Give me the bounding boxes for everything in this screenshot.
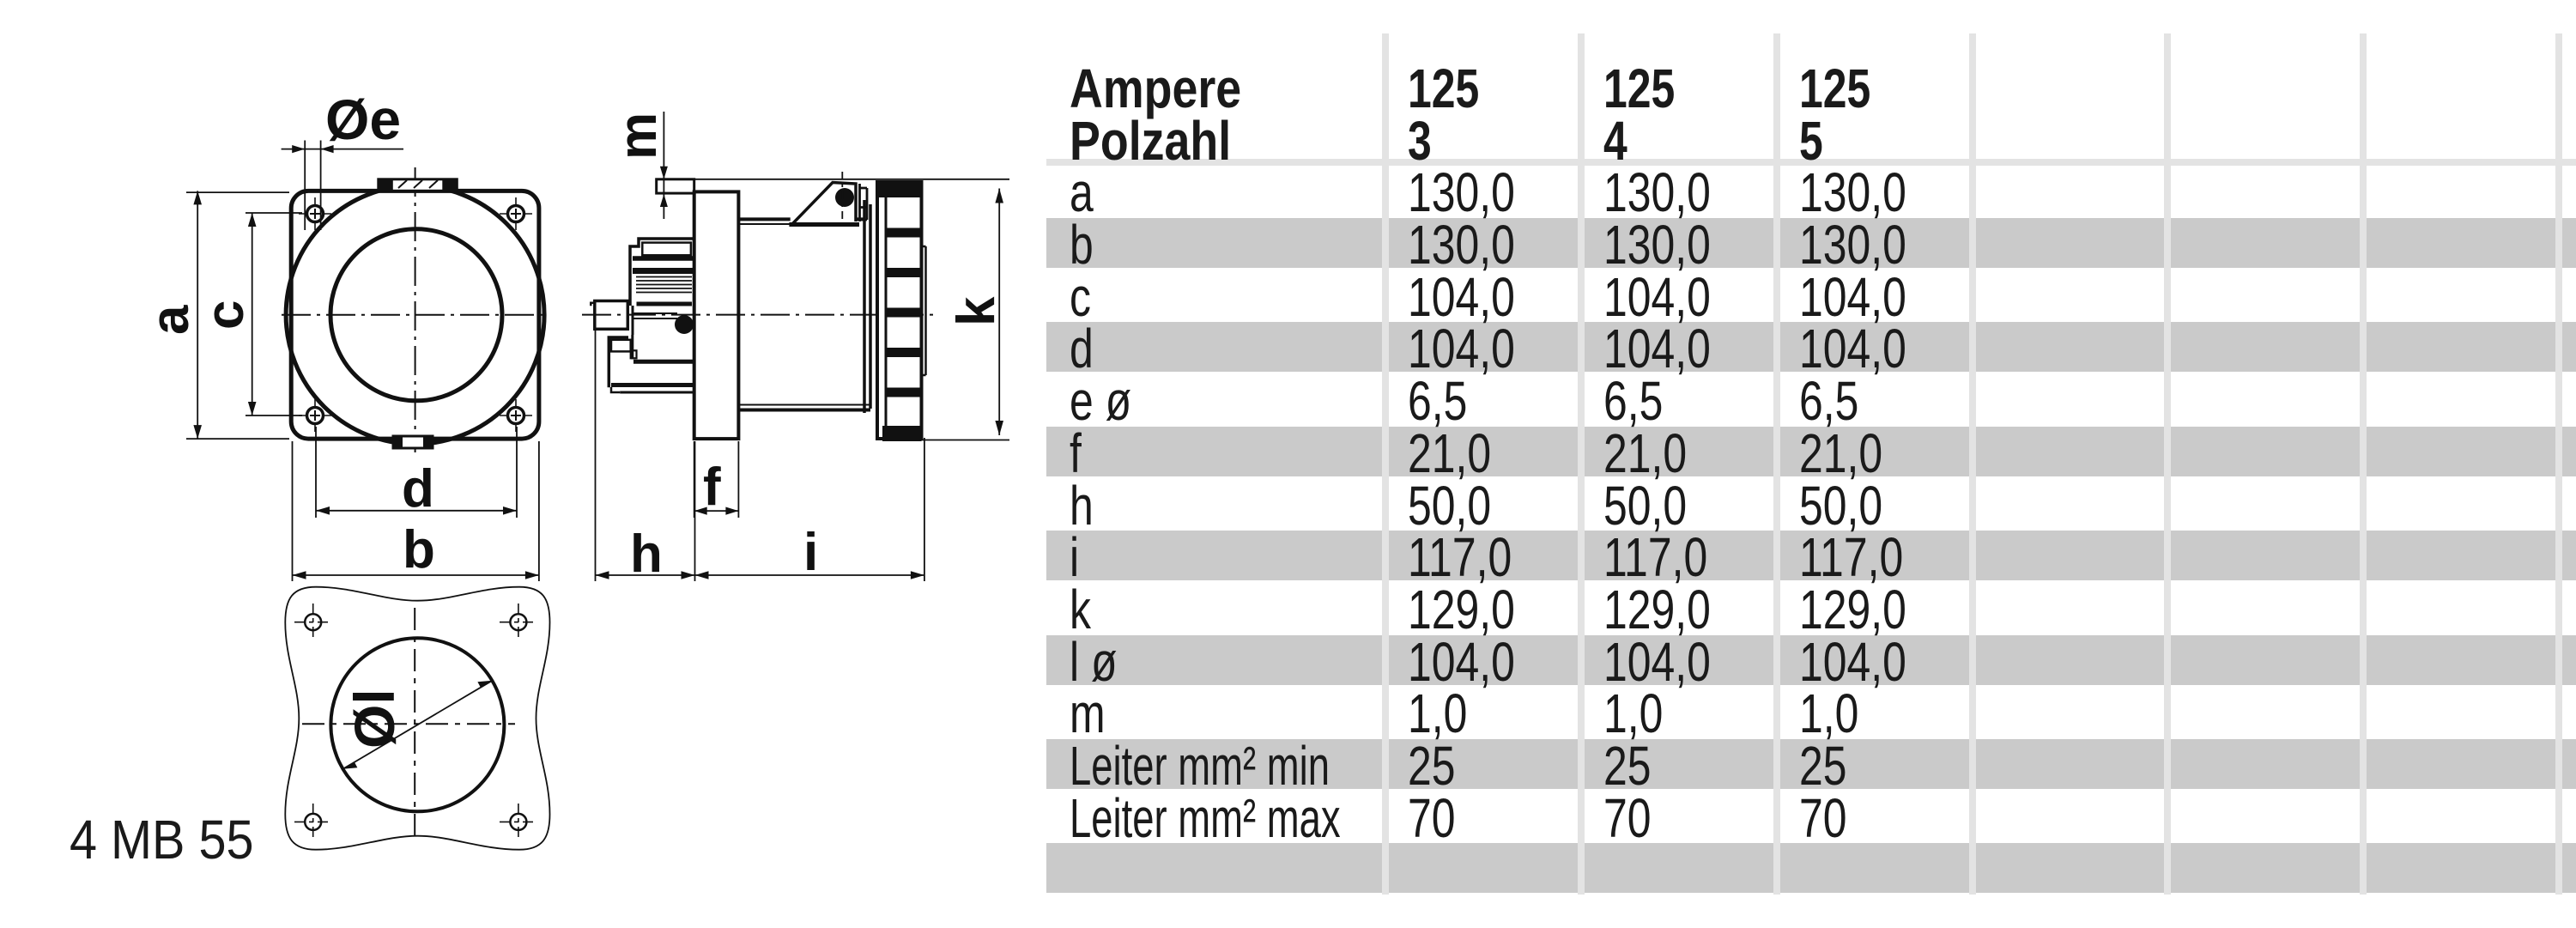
svg-text:h: h: [630, 525, 663, 584]
svg-text:c: c: [196, 300, 255, 330]
svg-text:f: f: [703, 458, 721, 517]
svg-text:d: d: [402, 459, 434, 519]
svg-text:k: k: [947, 296, 1006, 326]
svg-text:m: m: [609, 112, 668, 160]
svg-text:Øe: Øe: [325, 88, 401, 151]
svg-text:Øl: Øl: [342, 688, 406, 749]
svg-text:a: a: [141, 305, 200, 335]
svg-text:i: i: [803, 523, 818, 582]
svg-text:b: b: [403, 520, 435, 579]
